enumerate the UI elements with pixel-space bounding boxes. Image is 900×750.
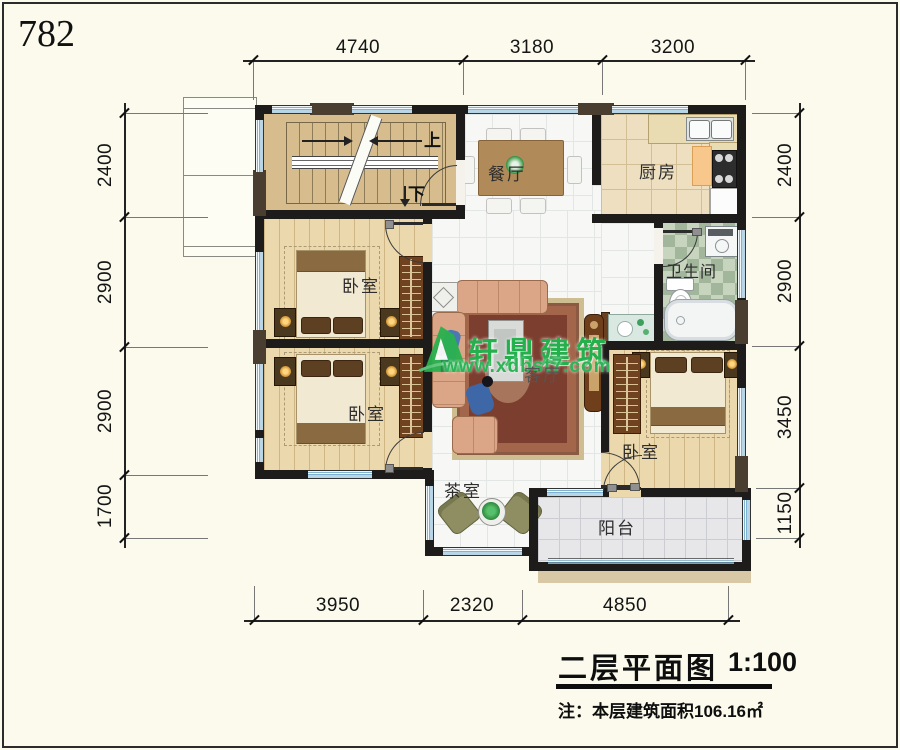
window: [255, 438, 264, 462]
dim-label: 2400: [776, 135, 796, 195]
extension-line: [124, 347, 208, 348]
door-opening: [654, 228, 663, 264]
room-label-kitchen: 厨房: [639, 158, 677, 183]
window: [425, 486, 434, 540]
wall: [601, 341, 737, 350]
dining-chair: [486, 198, 512, 214]
wall-pier: [253, 170, 266, 216]
wall-pier: [578, 103, 614, 115]
door-handle: [385, 464, 394, 473]
armchair: [452, 416, 498, 454]
door-handle: [692, 228, 702, 236]
extension-line: [752, 113, 800, 114]
stair-arrow-head: [344, 136, 353, 146]
room-label-tea: 茶室: [444, 477, 482, 502]
dim-label: 2900: [96, 381, 116, 441]
stair-arrow-line: [378, 140, 422, 142]
wall-pier: [735, 300, 748, 344]
kitchen-fridge: [710, 188, 738, 215]
wall-pier: [735, 456, 748, 492]
dim-label: 3200: [633, 37, 713, 59]
kitchen-sink: [686, 117, 734, 141]
tea-table: [478, 498, 506, 526]
title-underline: [556, 684, 772, 689]
nightstand: [274, 357, 296, 386]
bed: [296, 354, 366, 444]
extension-line: [463, 60, 464, 95]
window: [737, 230, 746, 298]
extension-line: [124, 538, 208, 539]
plant: [482, 502, 500, 520]
wall: [264, 339, 423, 348]
stair-arrow-line: [302, 140, 346, 142]
stair-up-label: 上: [424, 126, 441, 151]
window: [255, 120, 264, 172]
window: [255, 252, 264, 330]
dim-label: 3950: [298, 595, 378, 617]
door-handle: [385, 220, 394, 229]
window: [612, 105, 688, 114]
door-opening: [423, 224, 432, 262]
window: [737, 388, 746, 456]
dimension-line: [244, 620, 740, 622]
extension-line: [253, 60, 254, 100]
dim-label: 2900: [776, 251, 796, 311]
extension-line: [745, 60, 746, 100]
wall-pier: [253, 330, 266, 364]
floor-plan-sheet: 782 上 下: [0, 0, 900, 750]
window: [272, 105, 312, 114]
wall: [264, 210, 465, 219]
dim-label: 3180: [492, 37, 572, 59]
dim-label: 2900: [96, 252, 116, 312]
dimension-line: [243, 60, 755, 62]
stair-down-label: 下: [408, 180, 425, 205]
window: [308, 470, 372, 479]
room-label-living: 客厅: [524, 361, 562, 386]
stair-arrow-head: [369, 136, 378, 146]
dim-label: 4740: [318, 37, 398, 59]
door-opening: [456, 160, 465, 205]
extension-line: [752, 217, 800, 218]
window: [742, 500, 751, 540]
wall: [592, 214, 737, 223]
dim-label: 3450: [776, 387, 796, 447]
room-label-bedroom2: 卧室: [348, 400, 386, 425]
dim-label: 4850: [585, 595, 665, 617]
wall: [529, 497, 538, 571]
room-label-bedroom1: 卧室: [342, 272, 380, 297]
stair-down-arrow: [404, 186, 406, 200]
dim-label: 1150: [776, 483, 796, 543]
door-leaf: [422, 203, 456, 206]
door-handle: [607, 484, 617, 492]
drawing-scale: 1:100: [728, 647, 797, 678]
floor-balcony: [538, 497, 742, 562]
dim-label: 2400: [96, 135, 116, 195]
extension-line: [124, 217, 208, 218]
extension-line: [522, 590, 523, 620]
dimension-line: [799, 103, 801, 548]
extension-line: [124, 113, 208, 114]
kitchen-prep-board: [692, 146, 712, 186]
dining-chair: [520, 198, 546, 214]
balcony-apron: [538, 571, 751, 583]
balcony-railing: [548, 558, 734, 564]
extension-line: [602, 60, 603, 95]
extension-line: [752, 346, 800, 347]
dimension-line: [124, 103, 126, 548]
extension-line: [254, 586, 255, 620]
sofa: [456, 280, 548, 314]
nightstand: [274, 308, 296, 337]
wall: [592, 105, 601, 185]
extension-line: [423, 590, 424, 620]
extension-line: [124, 475, 208, 476]
room-label-bedroom3: 卧室: [622, 438, 660, 463]
door-leaf: [389, 467, 423, 470]
bed: [650, 352, 726, 434]
wardrobe: [613, 354, 641, 434]
wall-pier: [310, 103, 354, 115]
door-leaf: [389, 222, 423, 225]
room-label-dining: 餐厅: [488, 160, 526, 185]
extension-line: [728, 586, 729, 620]
dim-label: 1700: [96, 476, 116, 536]
bathtub: [664, 299, 739, 341]
dining-chair: [567, 156, 582, 184]
room-label-balcony: 阳台: [598, 514, 636, 539]
dim-label: 2320: [432, 595, 512, 617]
window: [352, 105, 412, 114]
door-handle: [630, 483, 640, 491]
terrace-outline: [183, 97, 257, 257]
window: [547, 488, 603, 497]
area-note: 注：本层建筑面积106.16㎡: [558, 697, 763, 722]
side-table: [428, 282, 458, 312]
drawing-title: 二层平面图: [558, 645, 718, 687]
vanity-console: [608, 314, 656, 344]
room-label-bathroom: 卫生间: [666, 258, 717, 282]
window: [443, 547, 522, 556]
window: [255, 364, 264, 430]
window: [468, 105, 578, 114]
washing-machine: [705, 226, 738, 257]
page-number: 782: [18, 12, 75, 56]
kitchen-stove: [712, 150, 737, 188]
door-opening: [423, 432, 432, 468]
